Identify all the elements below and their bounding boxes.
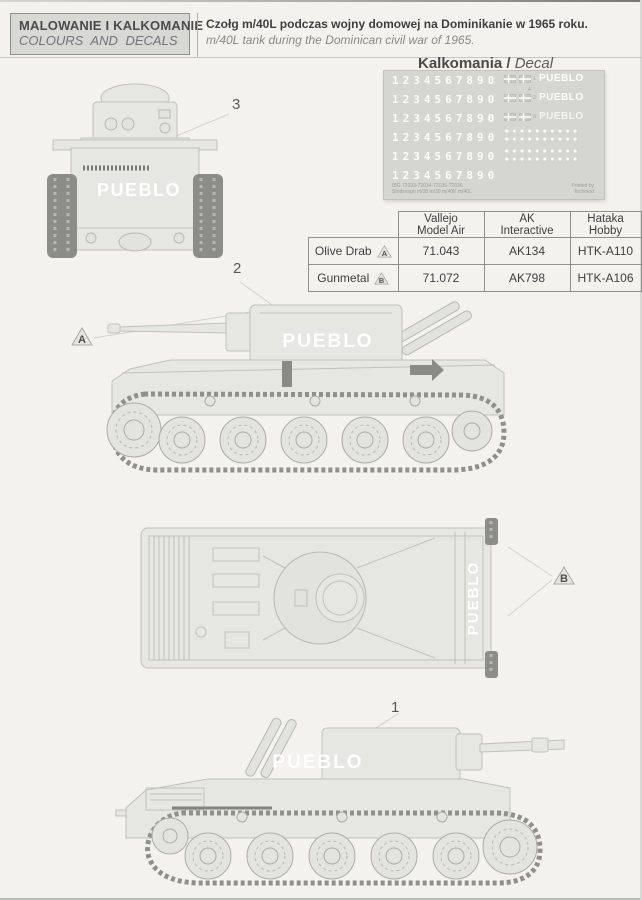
svg-text:B: B	[379, 276, 385, 285]
decal-digit-row: 1234567890	[392, 150, 512, 164]
paint-code-cell: AK134	[484, 238, 570, 265]
page-edge-top	[0, 0, 642, 2]
paint-code-cell: 71.072	[398, 265, 484, 292]
column-header-vallejo: Vallejo Model Air	[398, 212, 484, 238]
pueblo-marking: PUEBLO	[465, 561, 482, 636]
swedish-flag-icon	[504, 113, 516, 121]
subject-caption: Czołg m/40L podczas wojny domowej na Dom…	[206, 16, 588, 48]
table-corner-cell	[309, 212, 399, 238]
side-hull	[112, 359, 504, 415]
table-row: Gunmetal B 71.072 AK798 HTK-A106	[309, 265, 642, 292]
view-number-3: 3	[232, 96, 240, 113]
tank-left-side-view-illustration: PUEBLO	[100, 297, 515, 483]
subject-line-en: m/40L tank during the Dominican civil wa…	[206, 32, 588, 48]
pueblo-marking: PUEBLO	[272, 752, 363, 773]
paint-marker-a: A	[71, 327, 93, 346]
color-marker-b-icon: B	[374, 272, 389, 285]
page-title-en: COLOURS AND DECALS	[19, 33, 189, 48]
table-row: Olive Drab A 71.043 AK134 HTK-A110	[309, 238, 642, 265]
swedish-flag-icon	[504, 94, 516, 102]
decal-flag-pair	[504, 94, 531, 102]
view-number-1: 1	[391, 699, 399, 716]
tank-top-view-illustration: PUEBLO	[135, 512, 507, 684]
decal-item-number: 2	[533, 95, 536, 101]
page-title-pl: MALOWANIE I KALKOMANIE	[19, 18, 189, 33]
paint-code-cell: HTK-A110	[570, 238, 641, 265]
decal-pueblo-text: PUEBLO	[539, 73, 584, 84]
decal-dot-rows	[503, 147, 579, 162]
pueblo-marking: PUEBLO	[97, 180, 181, 200]
instruction-page: MALOWANIE I KALKOMANIE COLOURS AND DECAL…	[0, 0, 642, 900]
decal-digit-row: 1234567890	[392, 93, 512, 107]
svg-text:B: B	[560, 573, 568, 585]
swedish-flag-icon	[519, 75, 531, 83]
decal-pueblo-text: PUEBLO	[539, 111, 584, 122]
front-turret	[93, 84, 177, 142]
decal-flag-pair	[504, 75, 531, 83]
decal-digit-row: 1234567890	[392, 112, 512, 126]
paint-code-cell: HTK-A106	[570, 265, 641, 292]
svg-text:A: A	[78, 334, 86, 346]
column-header-hataka: Hataka Hobby	[570, 212, 641, 238]
tank-right-side-view-illustration: PUEBLO	[112, 716, 568, 896]
decal-digit-row: 1234567890	[392, 74, 512, 88]
decal-printer-line2: Techmod	[571, 189, 594, 195]
paint-code-cell: AK798	[484, 265, 570, 292]
subject-line-pl: Czołg m/40L podczas wojny domowej na Dom…	[206, 16, 588, 32]
decal-sheet: 1234567890 1234567890 1234567890 1234567…	[383, 70, 605, 200]
swedish-flag-icon	[519, 94, 531, 102]
decal-sheet-footer-right: Printed by Techmod	[571, 183, 594, 195]
view-number-2: 2	[233, 260, 241, 277]
decal-digit-row: 1234567890	[392, 169, 512, 183]
decal-item-number: 3	[533, 114, 536, 120]
decal-sheet-footer-left: IBG 72033-72034-72035-72036 Stridsvagn m…	[392, 183, 472, 195]
decal-flag-pair	[504, 113, 531, 121]
svg-text:A: A	[381, 249, 387, 258]
decal-item-number: 4	[528, 87, 531, 93]
tank-front-view-illustration: PUEBLO	[45, 78, 225, 260]
pueblo-marking: PUEBLO	[282, 331, 373, 352]
color-name: Olive Drab	[315, 244, 372, 258]
color-marker-a-icon: A	[377, 245, 392, 258]
side-gun	[108, 313, 254, 351]
exhaust-stacks	[244, 716, 297, 784]
paint-marker-b: B	[553, 566, 575, 585]
decal-item-number: 1	[533, 76, 536, 82]
color-name-cell: Gunmetal B	[309, 265, 399, 292]
color-name-cell: Olive Drab A	[309, 238, 399, 265]
color-name: Gunmetal	[317, 271, 369, 285]
header-vertical-divider	[197, 13, 198, 57]
header-box: MALOWANIE I KALKOMANIE COLOURS AND DECAL…	[10, 13, 190, 55]
table-header-row: Vallejo Model Air AK Interactive Hataka …	[309, 212, 642, 238]
decal-dot-rows	[503, 127, 579, 142]
decal-sheet-desc: Stridsvagn m/38 m/39 m/40K m/40L	[392, 189, 472, 195]
swedish-flag-icon	[519, 113, 531, 121]
swedish-flag-icon	[504, 75, 516, 83]
paint-code-cell: 71.043	[398, 238, 484, 265]
paint-reference-table: Vallejo Model Air AK Interactive Hataka …	[308, 211, 642, 292]
decal-digit-row: 1234567890	[392, 131, 512, 145]
decal-pueblo-text: PUEBLO	[539, 92, 584, 103]
column-header-ak: AK Interactive	[484, 212, 570, 238]
